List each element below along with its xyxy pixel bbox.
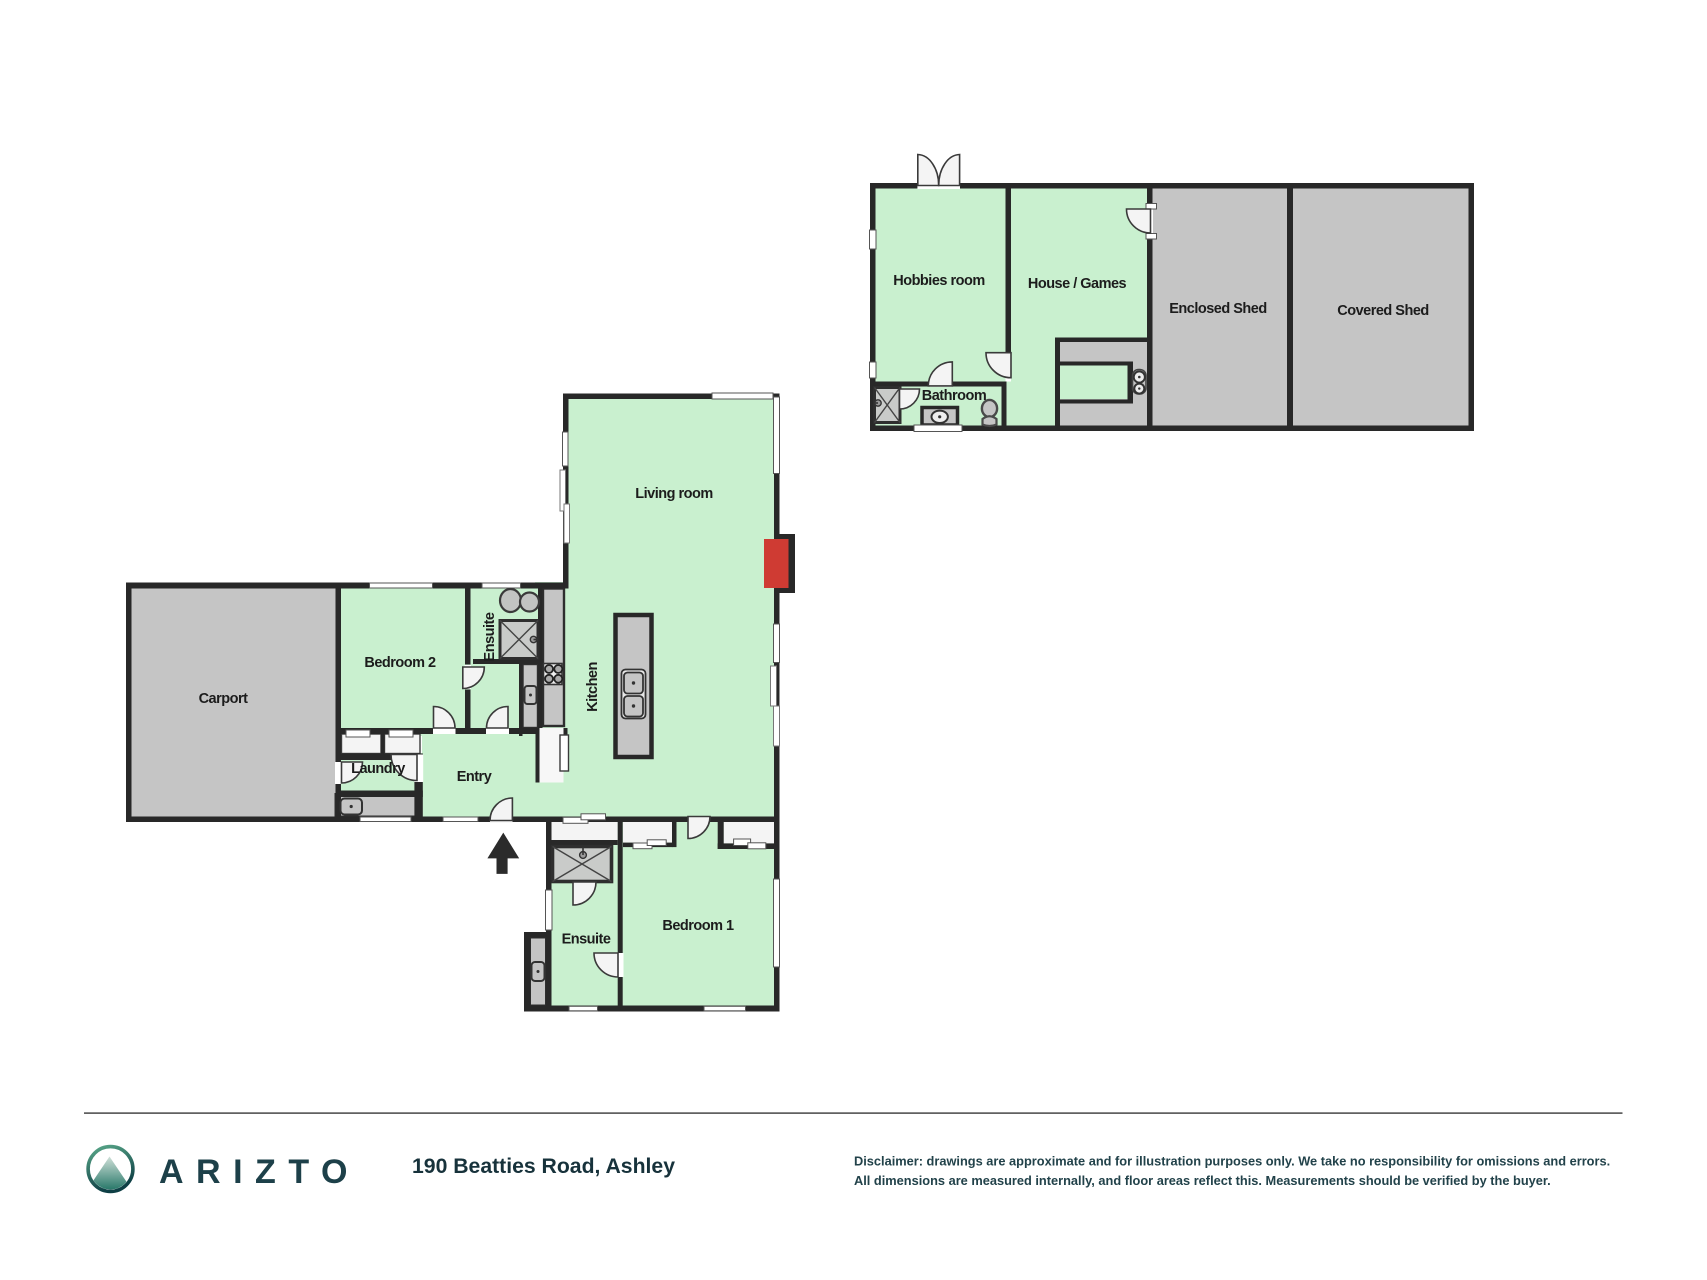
svg-text:Living room: Living room (635, 486, 712, 502)
svg-text:Bedroom 1: Bedroom 1 (662, 918, 734, 934)
svg-text:ARIZTO: ARIZTO (159, 1153, 360, 1191)
svg-text:Enclosed Shed: Enclosed Shed (1169, 301, 1266, 317)
svg-text:Hobbies room: Hobbies room (893, 273, 984, 289)
svg-text:Kitchen: Kitchen (585, 662, 601, 712)
svg-text:Ensuite: Ensuite (562, 932, 611, 948)
svg-text:All dimensions are measured in: All dimensions are measured internally, … (854, 1173, 1551, 1188)
svg-text:Covered Shed: Covered Shed (1337, 303, 1429, 319)
svg-text:Laundry: Laundry (351, 761, 405, 777)
svg-text:Ensuite: Ensuite (482, 612, 498, 661)
svg-text:Carport: Carport (199, 691, 249, 707)
svg-text:Bedroom 2: Bedroom 2 (364, 655, 436, 671)
svg-text:House / Games: House / Games (1028, 276, 1127, 292)
svg-text:Bathroom: Bathroom (922, 388, 986, 404)
svg-text:Entry: Entry (457, 769, 492, 785)
svg-text:Disclaimer: drawings are appro: Disclaimer: drawings are approximate and… (854, 1154, 1610, 1169)
svg-text:190 Beatties Road, Ashley: 190 Beatties Road, Ashley (412, 1155, 675, 1178)
